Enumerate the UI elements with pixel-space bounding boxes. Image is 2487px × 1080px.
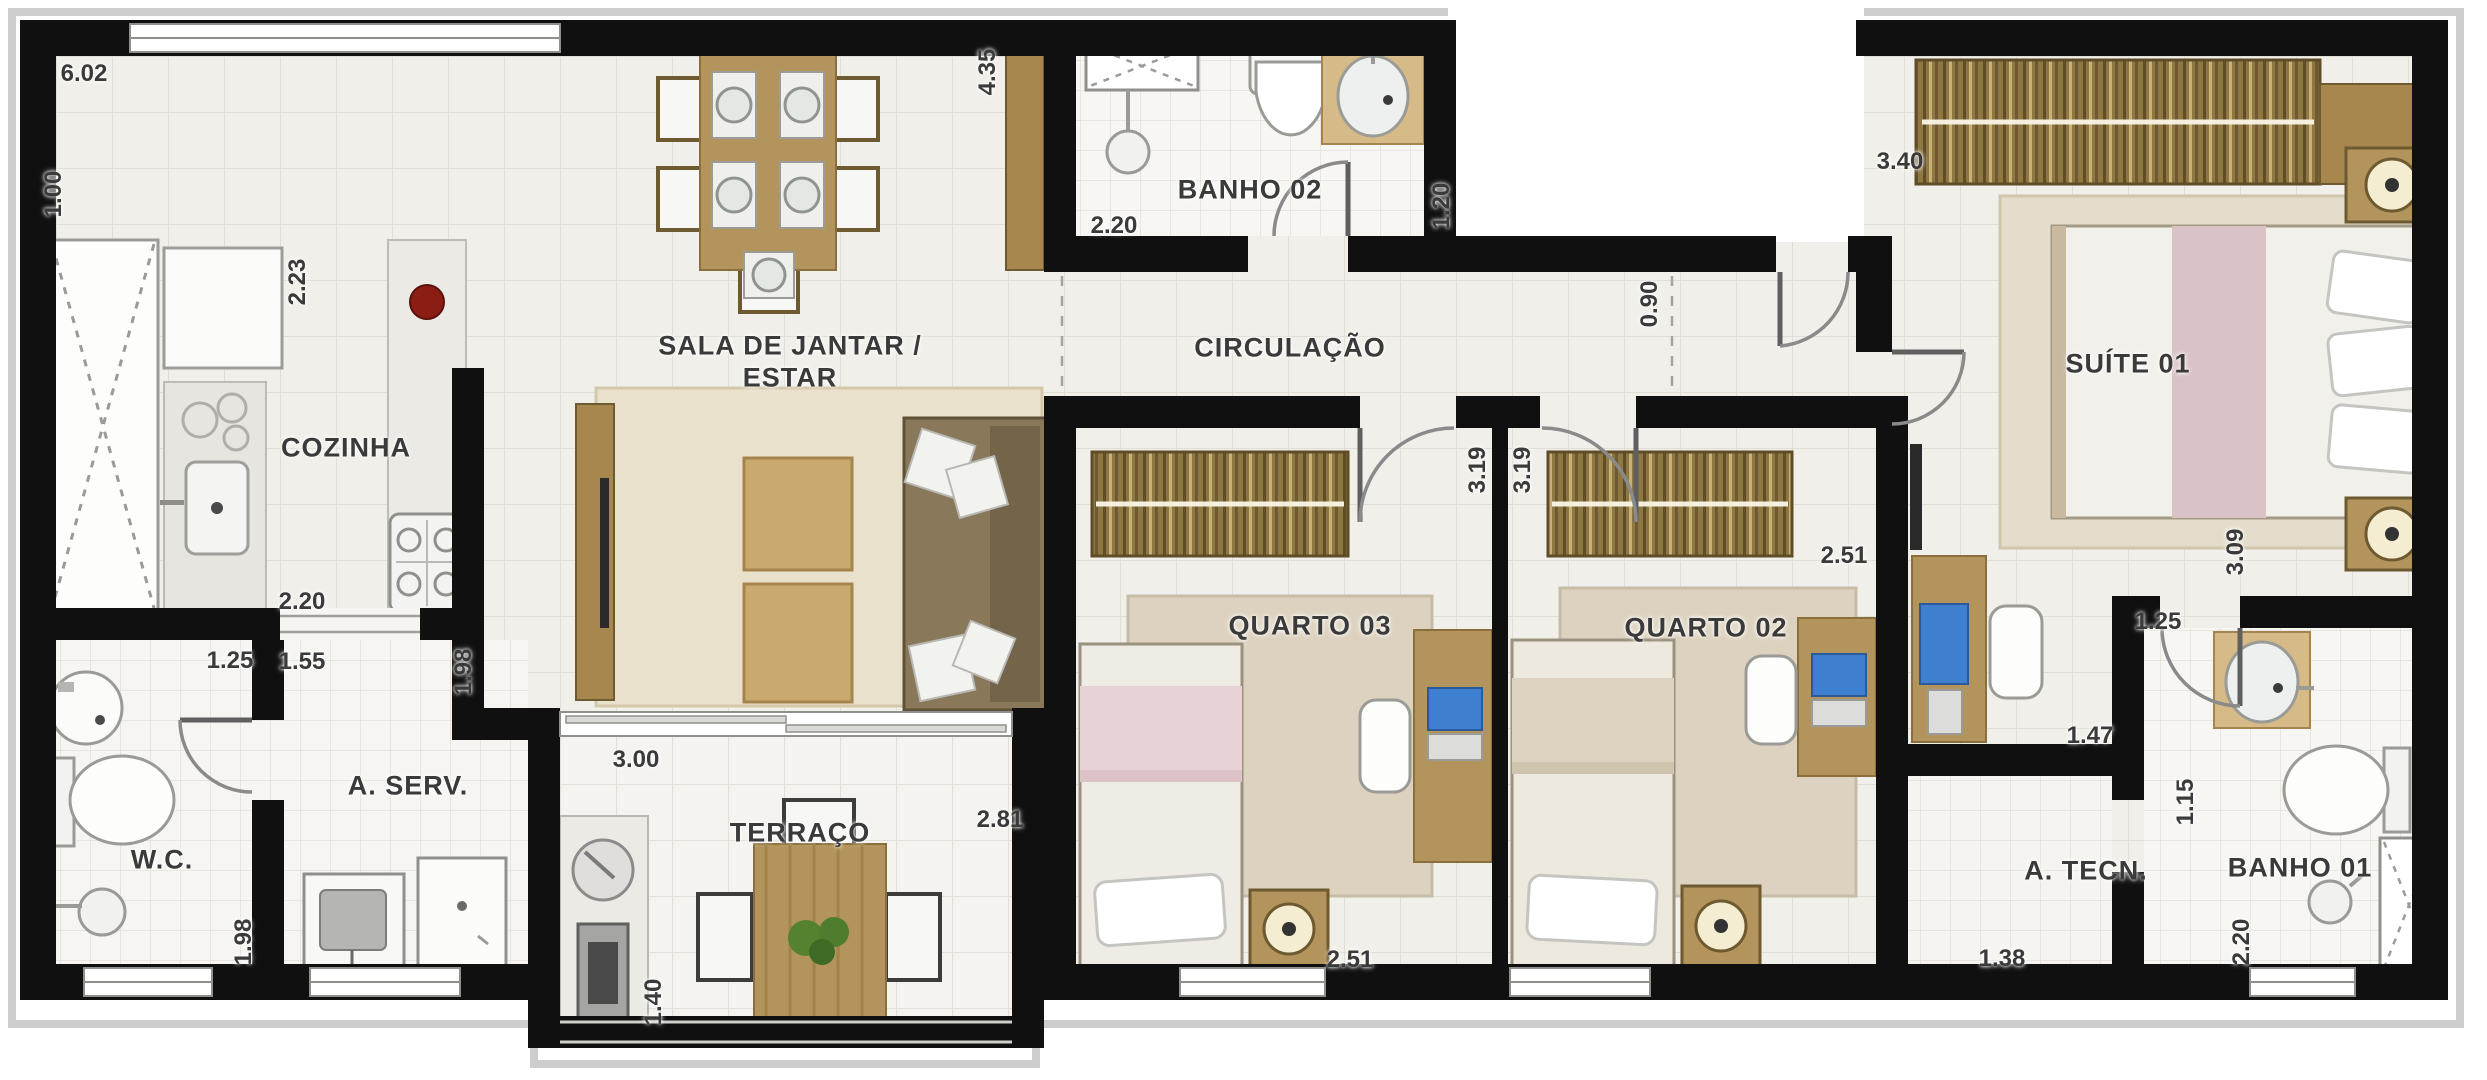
floor-plan-drawing	[0, 0, 2487, 1080]
laptop-keyboard	[1428, 734, 1482, 760]
laptop-screen	[1428, 688, 1482, 730]
laptop-keyboard	[1812, 700, 1866, 726]
window	[1510, 968, 1650, 996]
floor-plan-stage: COZINHA SALA DE JANTAR / ESTAR CIRCULAÇÃ…	[0, 0, 2487, 1080]
terrace-appliance	[578, 924, 628, 1024]
kitchen	[48, 240, 466, 614]
banho02-sink	[1322, 44, 1424, 144]
wc-toilet	[48, 756, 174, 846]
kitchen-counter	[160, 382, 266, 612]
window	[130, 24, 560, 52]
quarto02-nightstand	[1682, 886, 1760, 966]
tv	[600, 478, 609, 628]
sofa	[904, 418, 1046, 710]
keyboard	[1928, 690, 1962, 734]
washing-machine	[418, 858, 506, 970]
banho01-toilet	[2284, 746, 2410, 834]
quarto03-bed	[1080, 644, 1242, 970]
window	[310, 968, 460, 996]
quarto03-nightstand	[1250, 890, 1328, 968]
window	[84, 968, 212, 996]
quarto02-wardrobe	[1548, 452, 1792, 556]
quarto03-wardrobe	[1092, 452, 1348, 556]
desk-chair	[1990, 606, 2042, 698]
laptop-screen	[1812, 654, 1866, 696]
sliding-door	[560, 712, 1012, 736]
decor-bowl	[410, 285, 444, 319]
sideboard	[1006, 44, 1044, 270]
monitor-screen	[1920, 604, 1968, 684]
terrace-table	[754, 844, 886, 1038]
suite-tv	[1910, 444, 1922, 550]
window	[2250, 968, 2355, 996]
banho01-sink	[2214, 632, 2314, 728]
floor-cushion	[744, 584, 852, 702]
dining-table	[700, 40, 836, 298]
pass-opening	[280, 608, 420, 640]
water-heater	[573, 840, 633, 900]
laundry-tank	[304, 874, 404, 968]
desk-chair	[1746, 656, 1796, 744]
wc-sink	[50, 672, 122, 744]
service-area	[304, 858, 506, 970]
floor-cushion	[744, 458, 852, 570]
fridge	[164, 248, 282, 368]
desk-chair	[1360, 700, 1410, 792]
living-area	[576, 388, 1046, 710]
kitchen-shaft	[48, 240, 158, 612]
tv-rack	[576, 404, 614, 700]
quarto02-bed	[1512, 640, 1674, 970]
suite-bed	[2052, 226, 2442, 518]
suite-wardrobe	[1916, 60, 2320, 184]
window	[1180, 968, 1325, 996]
